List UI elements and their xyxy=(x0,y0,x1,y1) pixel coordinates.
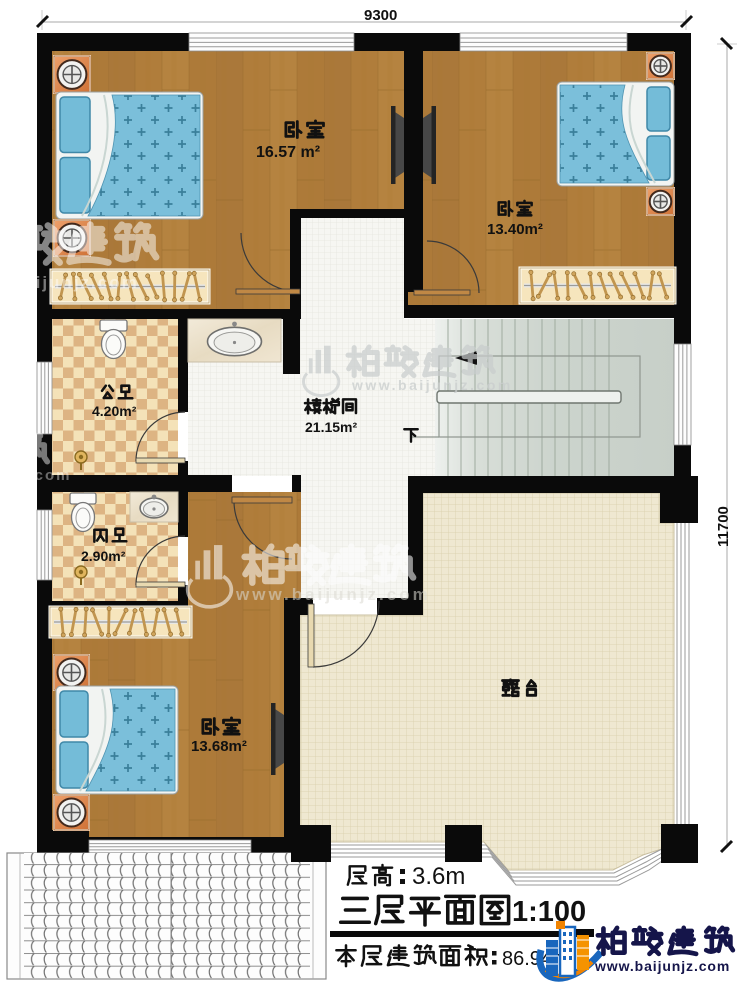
svg-text:16.57 m²: 16.57 m² xyxy=(256,144,320,161)
svg-text:13.68m²: 13.68m² xyxy=(191,738,247,755)
svg-text:www.baijunjz.com: www.baijunjz.com xyxy=(351,377,513,393)
svg-text:www.baijunjz.com: www.baijunjz.com xyxy=(594,958,730,974)
svg-text:www.baijunjz.com: www.baijunjz.com xyxy=(0,273,139,292)
svg-text:www.baijunjz.com: www.baijunjz.com xyxy=(0,467,71,484)
svg-text:2.90m²: 2.90m² xyxy=(81,548,126,564)
svg-text:www.baijunjz.com: www.baijunjz.com xyxy=(235,585,431,604)
svg-text:4.20m²: 4.20m² xyxy=(92,403,137,419)
svg-text:13.40m²: 13.40m² xyxy=(487,221,543,238)
svg-text:11700: 11700 xyxy=(715,506,732,547)
svg-text:1:100: 1:100 xyxy=(512,896,586,928)
svg-text:9300: 9300 xyxy=(364,7,397,24)
svg-text:3.6m: 3.6m xyxy=(412,863,465,890)
svg-text:21.15m²: 21.15m² xyxy=(305,419,357,435)
